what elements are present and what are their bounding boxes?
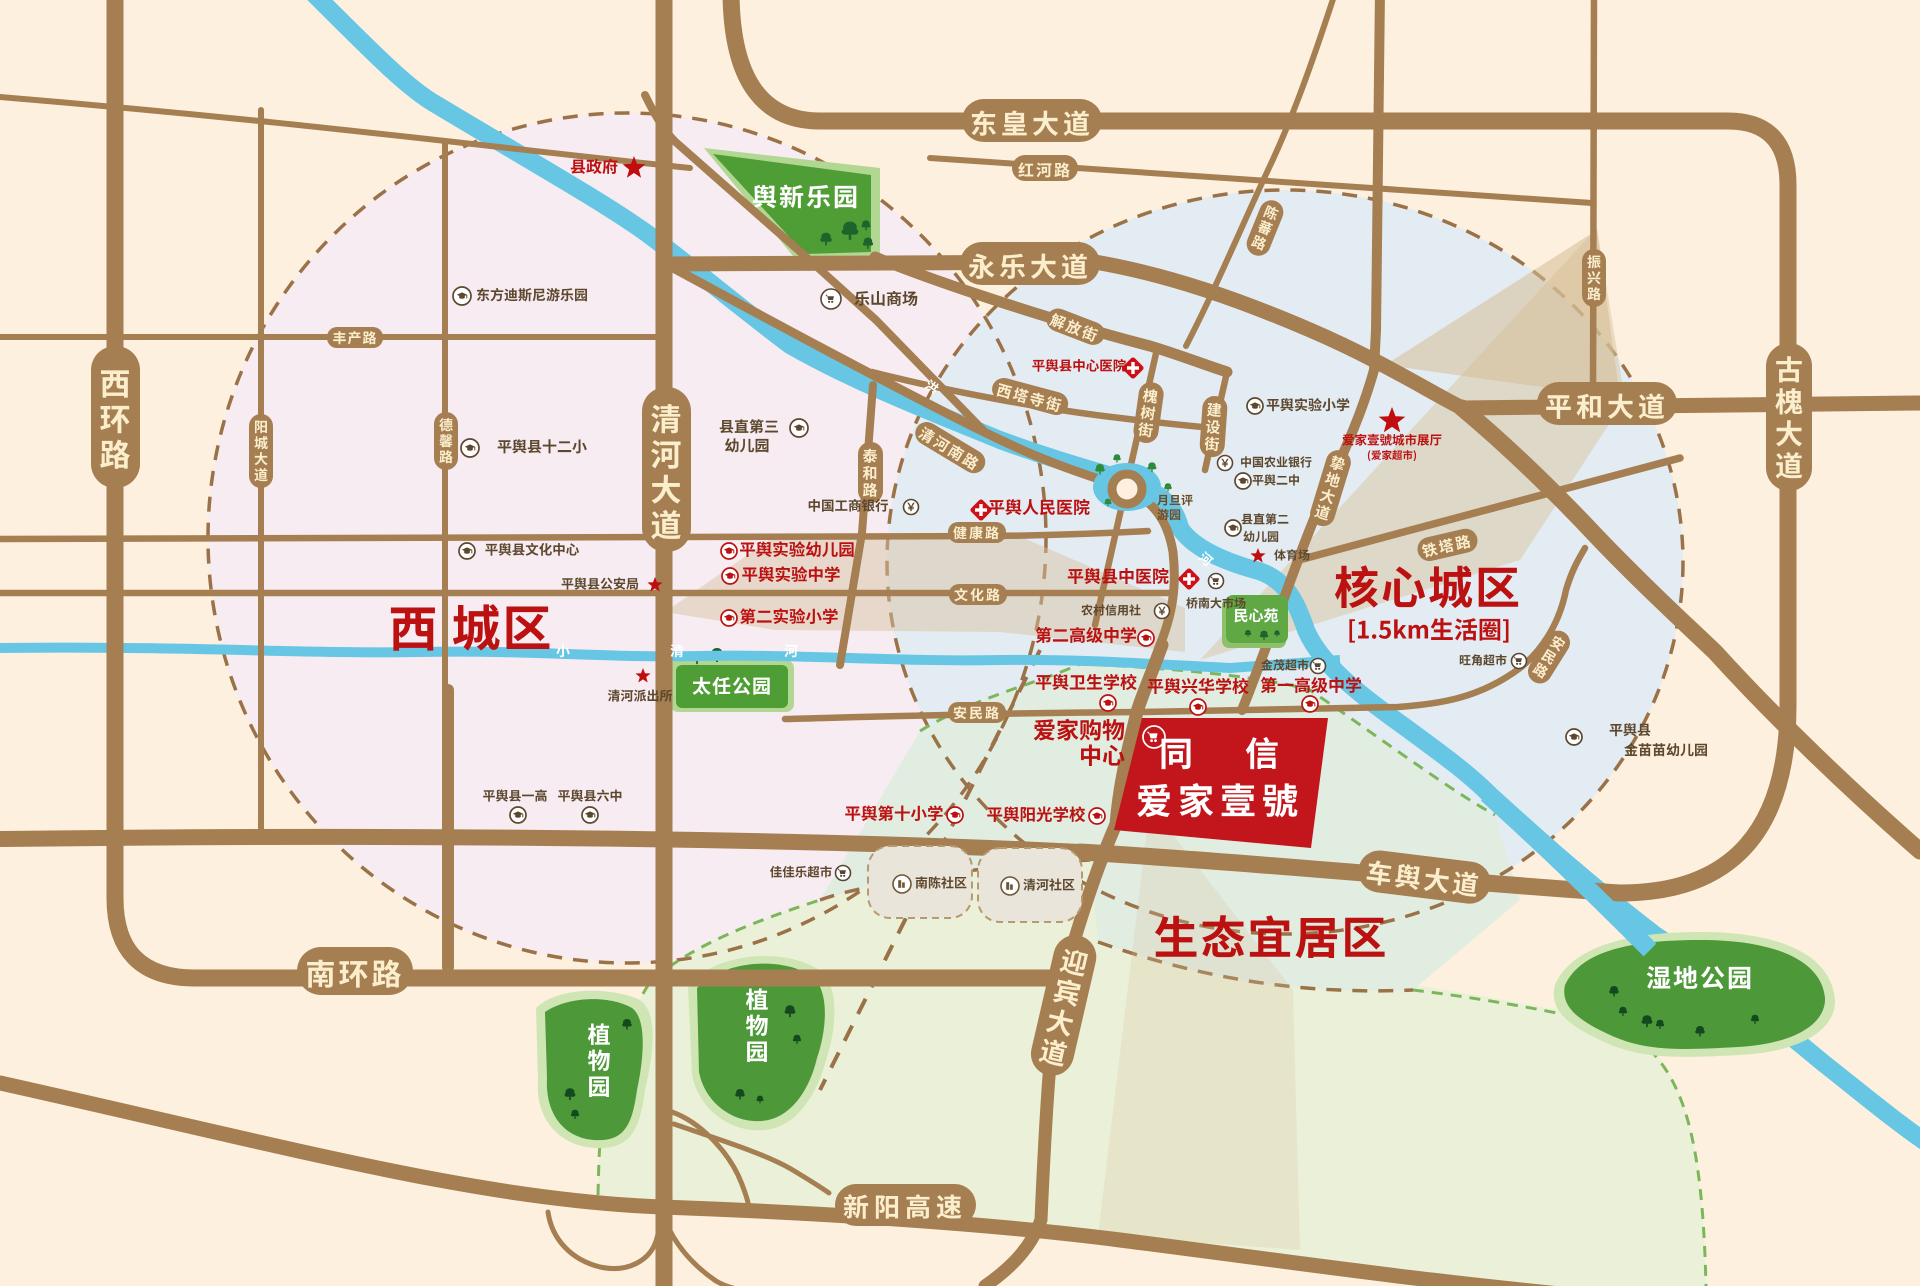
svg-text:桥南大市场: 桥南大市场 [1186, 594, 1246, 611]
svg-text:县政府: 县政府 [570, 153, 618, 177]
svg-text:中国工商银行: 中国工商银行 [808, 495, 889, 515]
svg-text:路: 路 [439, 447, 453, 467]
svg-text:平舆县中医院: 平舆县中医院 [1067, 563, 1169, 588]
svg-text:丰产路: 丰产路 [333, 328, 378, 348]
svg-text:南陈社区: 南陈社区 [915, 873, 967, 892]
svg-text:道: 道 [651, 501, 682, 546]
svg-text:爱家壹號城市展厅: 爱家壹號城市展厅 [1342, 429, 1442, 448]
svg-text:永乐大道: 永乐大道 [968, 246, 1092, 285]
svg-text:平舆实验幼儿园: 平舆实验幼儿园 [739, 536, 855, 560]
svg-text:东皇大道: 东皇大道 [970, 103, 1094, 142]
svg-text:清河社区: 清河社区 [1023, 875, 1075, 894]
svg-text:平舆县文化中心: 平舆县文化中心 [485, 539, 580, 559]
svg-text:平舆县中心医院: 平舆县中心医院 [1032, 355, 1127, 375]
svg-text:街: 街 [1204, 433, 1220, 455]
svg-text:街: 街 [1137, 418, 1155, 441]
svg-text:南环路: 南环路 [306, 950, 405, 994]
svg-text:红河路: 红河路 [1018, 157, 1072, 181]
svg-text:爱家壹號: 爱家壹號 [1136, 773, 1304, 825]
svg-text:佳佳乐超市: 佳佳乐超市 [770, 861, 833, 880]
svg-text:平舆实验中学: 平舆实验中学 [742, 561, 841, 585]
svg-text:道: 道 [254, 465, 268, 485]
svg-text:植物园: 植物园 [746, 981, 769, 1067]
svg-text:￥: ￥ [1157, 604, 1168, 619]
svg-text:平舆县六中: 平舆县六中 [557, 786, 622, 805]
svg-text:健康路: 健康路 [953, 523, 1001, 543]
svg-text:￥: ￥ [906, 500, 917, 515]
svg-text:小清河: 小清河 [556, 641, 898, 661]
svg-text:平舆二中: 平舆二中 [1252, 471, 1300, 488]
svg-text:东方迪斯尼游乐园: 东方迪斯尼游乐园 [476, 285, 588, 305]
svg-text:乐山商场: 乐山商场 [854, 285, 918, 309]
svg-text:平舆县一高: 平舆县一高 [482, 786, 547, 805]
svg-text:平舆县十二小: 平舆县十二小 [497, 436, 587, 457]
svg-text:湿地公园: 湿地公园 [1646, 959, 1754, 995]
svg-text:农村信用社: 农村信用社 [1081, 601, 1141, 618]
svg-text:舆新乐园: 舆新乐园 [752, 178, 860, 214]
svg-text:平舆人民医院: 平舆人民医院 [988, 494, 1090, 519]
svg-text:路: 路 [100, 430, 131, 475]
svg-text:平舆县公安局: 平舆县公安局 [561, 574, 639, 593]
svg-text:平舆阳光学校: 平舆阳光学校 [987, 801, 1087, 825]
svg-text:平舆兴华学校: 平舆兴华学校 [1147, 673, 1249, 698]
svg-text:中国农业银行: 中国农业银行 [1240, 453, 1312, 470]
svg-text:道: 道 [1775, 445, 1803, 485]
svg-text:太任公园: 太任公园 [692, 672, 772, 699]
svg-text:平舆实验小学: 平舆实验小学 [1266, 395, 1350, 415]
svg-text:清河派出所: 清河派出所 [607, 686, 672, 705]
svg-text:[1.5km生活圈]: [1.5km生活圈] [1347, 611, 1511, 646]
svg-text:旺角超市: 旺角超市 [1459, 651, 1507, 668]
svg-text:金茂超市: 金茂超市 [1261, 656, 1309, 673]
svg-text:(爱家超市): (爱家超市) [1367, 448, 1417, 463]
svg-text:第二实验小学: 第二实验小学 [740, 603, 839, 627]
svg-text:核心城区: 核心城区 [1334, 552, 1522, 617]
svg-text:￥: ￥ [1220, 456, 1231, 471]
svg-text:新阳高速: 新阳高速 [843, 1188, 967, 1225]
svg-text:信: 信 [1245, 727, 1279, 776]
svg-text:第一高级中学: 第一高级中学 [1260, 672, 1362, 697]
svg-text:平舆第十小学: 平舆第十小学 [845, 800, 944, 824]
svg-text:安民路: 安民路 [953, 703, 1001, 723]
svg-text:生态宜居区: 生态宜居区 [1153, 902, 1388, 967]
svg-text:同: 同 [1159, 727, 1193, 776]
svg-text:第二高级中学: 第二高级中学 [1035, 622, 1137, 647]
svg-text:文化路: 文化路 [954, 585, 1002, 605]
svg-text:体育场: 体育场 [1274, 546, 1310, 563]
svg-text:西城区: 西城区 [388, 590, 551, 661]
svg-text:植物园: 植物园 [588, 1016, 611, 1102]
svg-text:路: 路 [1587, 284, 1601, 304]
svg-text:平舆卫生学校: 平舆卫生学校 [1035, 669, 1137, 694]
svg-text:平和大道: 平和大道 [1545, 386, 1669, 425]
